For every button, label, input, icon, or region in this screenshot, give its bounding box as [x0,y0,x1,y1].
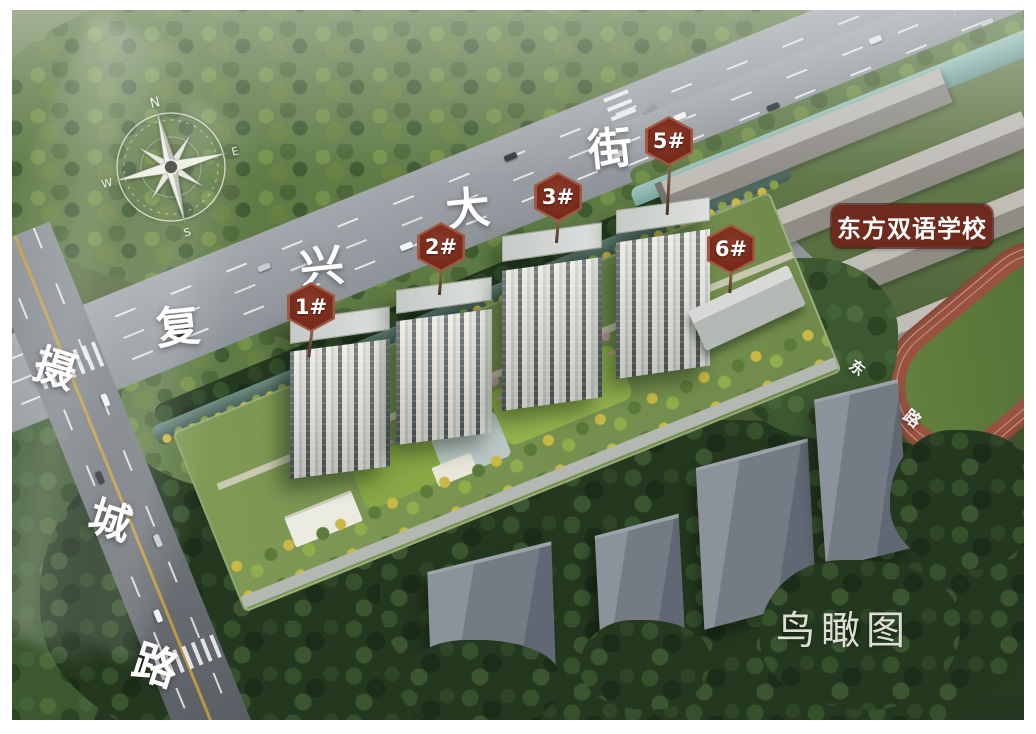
road-label-fuxing-char-3: 街 [586,126,634,174]
caption-birdseye: 鸟瞰图 [776,600,911,656]
tower-facade [290,339,390,479]
tower-1 [290,320,390,479]
frame-top [0,0,1036,10]
badge-label: 6# [710,227,753,272]
road-label-fuxing-char-0: 复 [154,304,202,352]
foreground-trees [890,430,1036,570]
car [503,152,517,162]
tower-5 [616,210,710,379]
compass-w-label: W [100,176,114,191]
car [868,35,882,45]
aerial-rendering: N E S W 1# 2# 3# 5# 6# 复 兴 大 街 摄 城 路 东 路… [0,0,1036,734]
car [399,241,413,251]
frame-right [1024,0,1036,734]
tower-facade [502,257,602,411]
car [95,471,105,485]
compass-e-label: E [230,144,240,158]
car [257,262,271,272]
tower-facade [616,229,710,379]
foreground-trees [400,640,560,730]
compass-n-label: N [149,95,162,112]
badge-label: 2# [420,225,463,270]
badge-label: 1# [290,285,333,330]
compass-s-label: S [182,225,192,239]
tower-facade [396,309,492,445]
car [153,533,163,547]
car [153,609,163,623]
car [100,393,110,407]
tower-2 [396,290,492,445]
badge-label: 5# [648,119,691,164]
school-label: 东方双语学校 [832,205,992,247]
road-label-fuxing-char-2: 大 [444,186,492,234]
badge-label: 3# [537,175,580,220]
foreground-trees [580,620,710,710]
frame-bottom [0,720,1036,734]
tower-3 [502,236,602,411]
frame-left [0,0,12,734]
road-label-fuxing-char-1: 兴 [298,244,346,292]
